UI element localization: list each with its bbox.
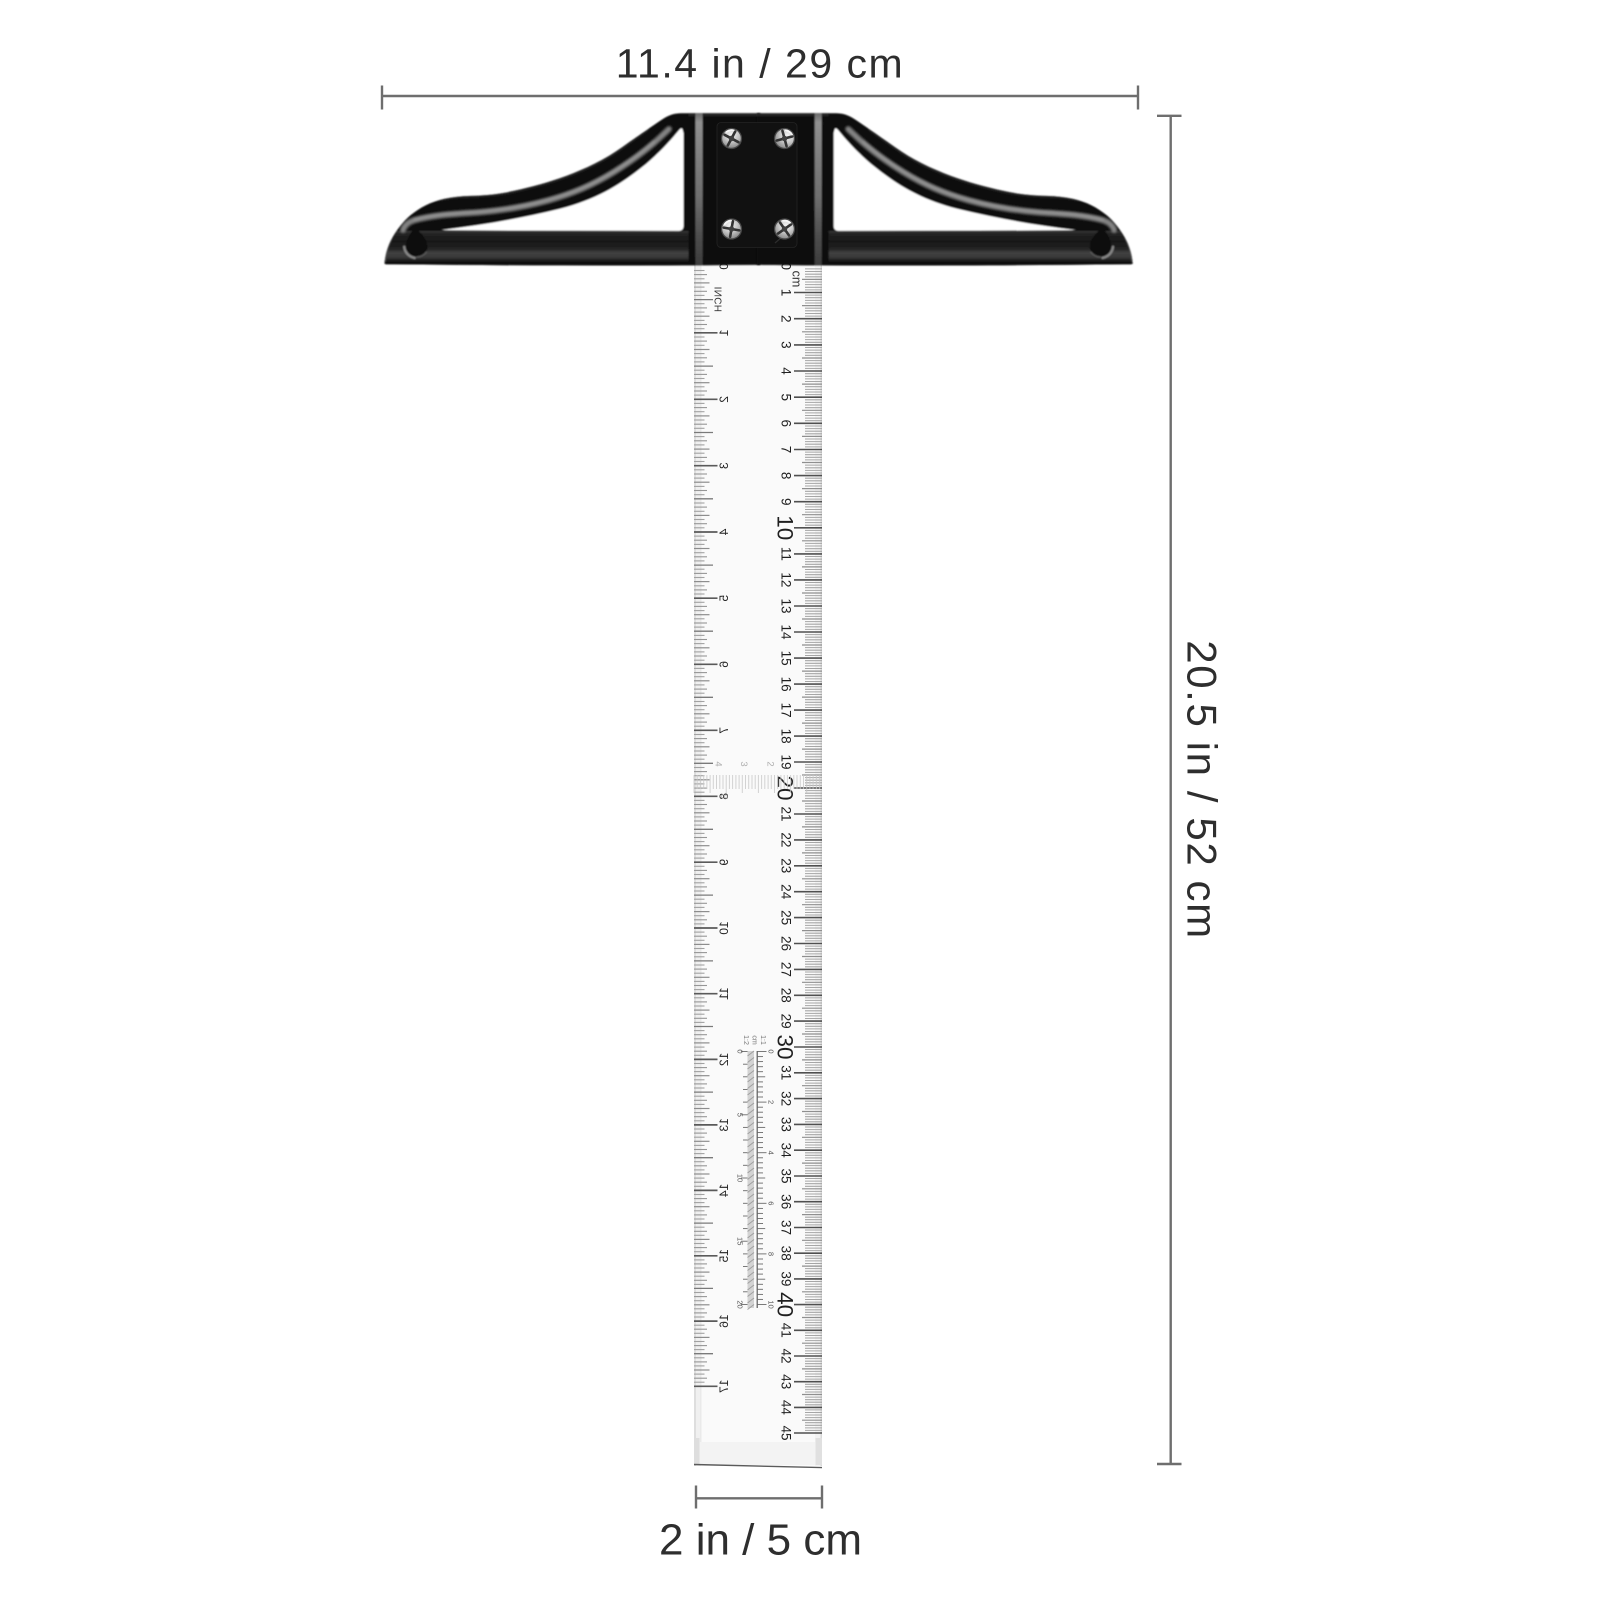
svg-text:5: 5 (779, 393, 794, 401)
svg-text:11: 11 (779, 547, 794, 561)
svg-text:17: 17 (779, 703, 794, 718)
svg-text:4: 4 (779, 367, 794, 375)
svg-text:12: 12 (779, 572, 794, 587)
svg-text:44: 44 (779, 1400, 794, 1416)
svg-text:26: 26 (779, 936, 794, 951)
svg-text:6: 6 (767, 1201, 776, 1205)
svg-text:3: 3 (717, 462, 731, 469)
svg-text:0: 0 (767, 1049, 776, 1053)
svg-text:33: 33 (779, 1117, 794, 1132)
svg-text:13: 13 (717, 1118, 731, 1132)
svg-text:42: 42 (779, 1348, 794, 1363)
svg-text:5: 5 (736, 1113, 745, 1117)
svg-text:10: 10 (717, 921, 731, 935)
svg-text:cm: cm (751, 1035, 758, 1045)
svg-text:32: 32 (779, 1091, 794, 1106)
svg-text:34: 34 (779, 1143, 794, 1159)
svg-text:cm: cm (790, 271, 804, 288)
svg-text:4: 4 (767, 1151, 776, 1155)
svg-text:15: 15 (779, 651, 794, 666)
svg-text:7: 7 (779, 446, 794, 454)
svg-text:9: 9 (779, 498, 794, 506)
svg-text:6: 6 (717, 661, 731, 668)
svg-text:1: 1 (717, 329, 731, 336)
svg-text:20.5 in / 52 cm: 20.5 in / 52 cm (1179, 640, 1226, 939)
svg-text:3: 3 (738, 761, 749, 766)
svg-text:28: 28 (779, 988, 794, 1003)
svg-text:11.4 in / 29 cm: 11.4 in / 29 cm (616, 41, 904, 87)
svg-text:10: 10 (767, 1300, 776, 1308)
svg-text:8: 8 (718, 794, 729, 799)
svg-text:18: 18 (779, 729, 794, 744)
svg-text:5: 5 (717, 595, 731, 602)
svg-text:12: 12 (717, 1053, 731, 1067)
svg-text:14: 14 (717, 1184, 731, 1198)
svg-text:14: 14 (779, 624, 794, 640)
svg-text:13: 13 (779, 598, 794, 613)
svg-text:7: 7 (717, 727, 731, 734)
svg-text:21: 21 (779, 806, 794, 821)
svg-text:23: 23 (779, 858, 794, 873)
svg-text:22: 22 (779, 832, 794, 847)
svg-text:16: 16 (779, 677, 794, 692)
svg-text:39: 39 (779, 1271, 794, 1286)
svg-text:20: 20 (736, 1300, 745, 1308)
svg-text:2: 2 (717, 396, 731, 403)
svg-text:15: 15 (736, 1237, 745, 1245)
svg-text:2 in / 5 cm: 2 in / 5 cm (659, 1516, 862, 1565)
svg-text:1:1: 1:1 (759, 1035, 766, 1045)
svg-text:30: 30 (773, 1034, 798, 1059)
svg-text:1:2: 1:2 (742, 1035, 749, 1045)
svg-text:17: 17 (717, 1380, 731, 1394)
svg-text:4: 4 (713, 761, 724, 766)
svg-text:2: 2 (765, 761, 776, 766)
svg-text:6: 6 (779, 420, 794, 428)
svg-text:36: 36 (779, 1194, 794, 1209)
svg-text:11: 11 (717, 987, 731, 1000)
svg-text:10: 10 (736, 1174, 745, 1182)
svg-text:1: 1 (779, 289, 794, 297)
svg-text:0: 0 (736, 1049, 745, 1053)
svg-text:31: 31 (779, 1065, 794, 1080)
svg-text:45: 45 (779, 1425, 794, 1440)
svg-text:8: 8 (767, 1252, 776, 1256)
svg-text:29: 29 (779, 1014, 794, 1029)
svg-text:43: 43 (779, 1374, 794, 1389)
svg-text:41: 41 (779, 1323, 794, 1338)
svg-text:4: 4 (717, 529, 731, 536)
svg-text:2: 2 (779, 315, 794, 323)
svg-text:37: 37 (779, 1220, 794, 1235)
svg-text:16: 16 (717, 1314, 731, 1328)
svg-text:24: 24 (779, 884, 794, 900)
svg-text:9: 9 (717, 859, 731, 866)
svg-text:25: 25 (779, 910, 794, 925)
svg-text:3: 3 (779, 341, 794, 349)
svg-text:INCH: INCH (714, 287, 725, 313)
svg-text:19: 19 (779, 754, 794, 769)
svg-text:38: 38 (779, 1246, 794, 1261)
svg-text:15: 15 (717, 1249, 731, 1263)
svg-text:8: 8 (779, 472, 794, 480)
svg-text:2: 2 (767, 1100, 776, 1104)
svg-text:35: 35 (779, 1168, 794, 1183)
svg-text:27: 27 (779, 962, 794, 977)
svg-text:10: 10 (773, 515, 798, 540)
